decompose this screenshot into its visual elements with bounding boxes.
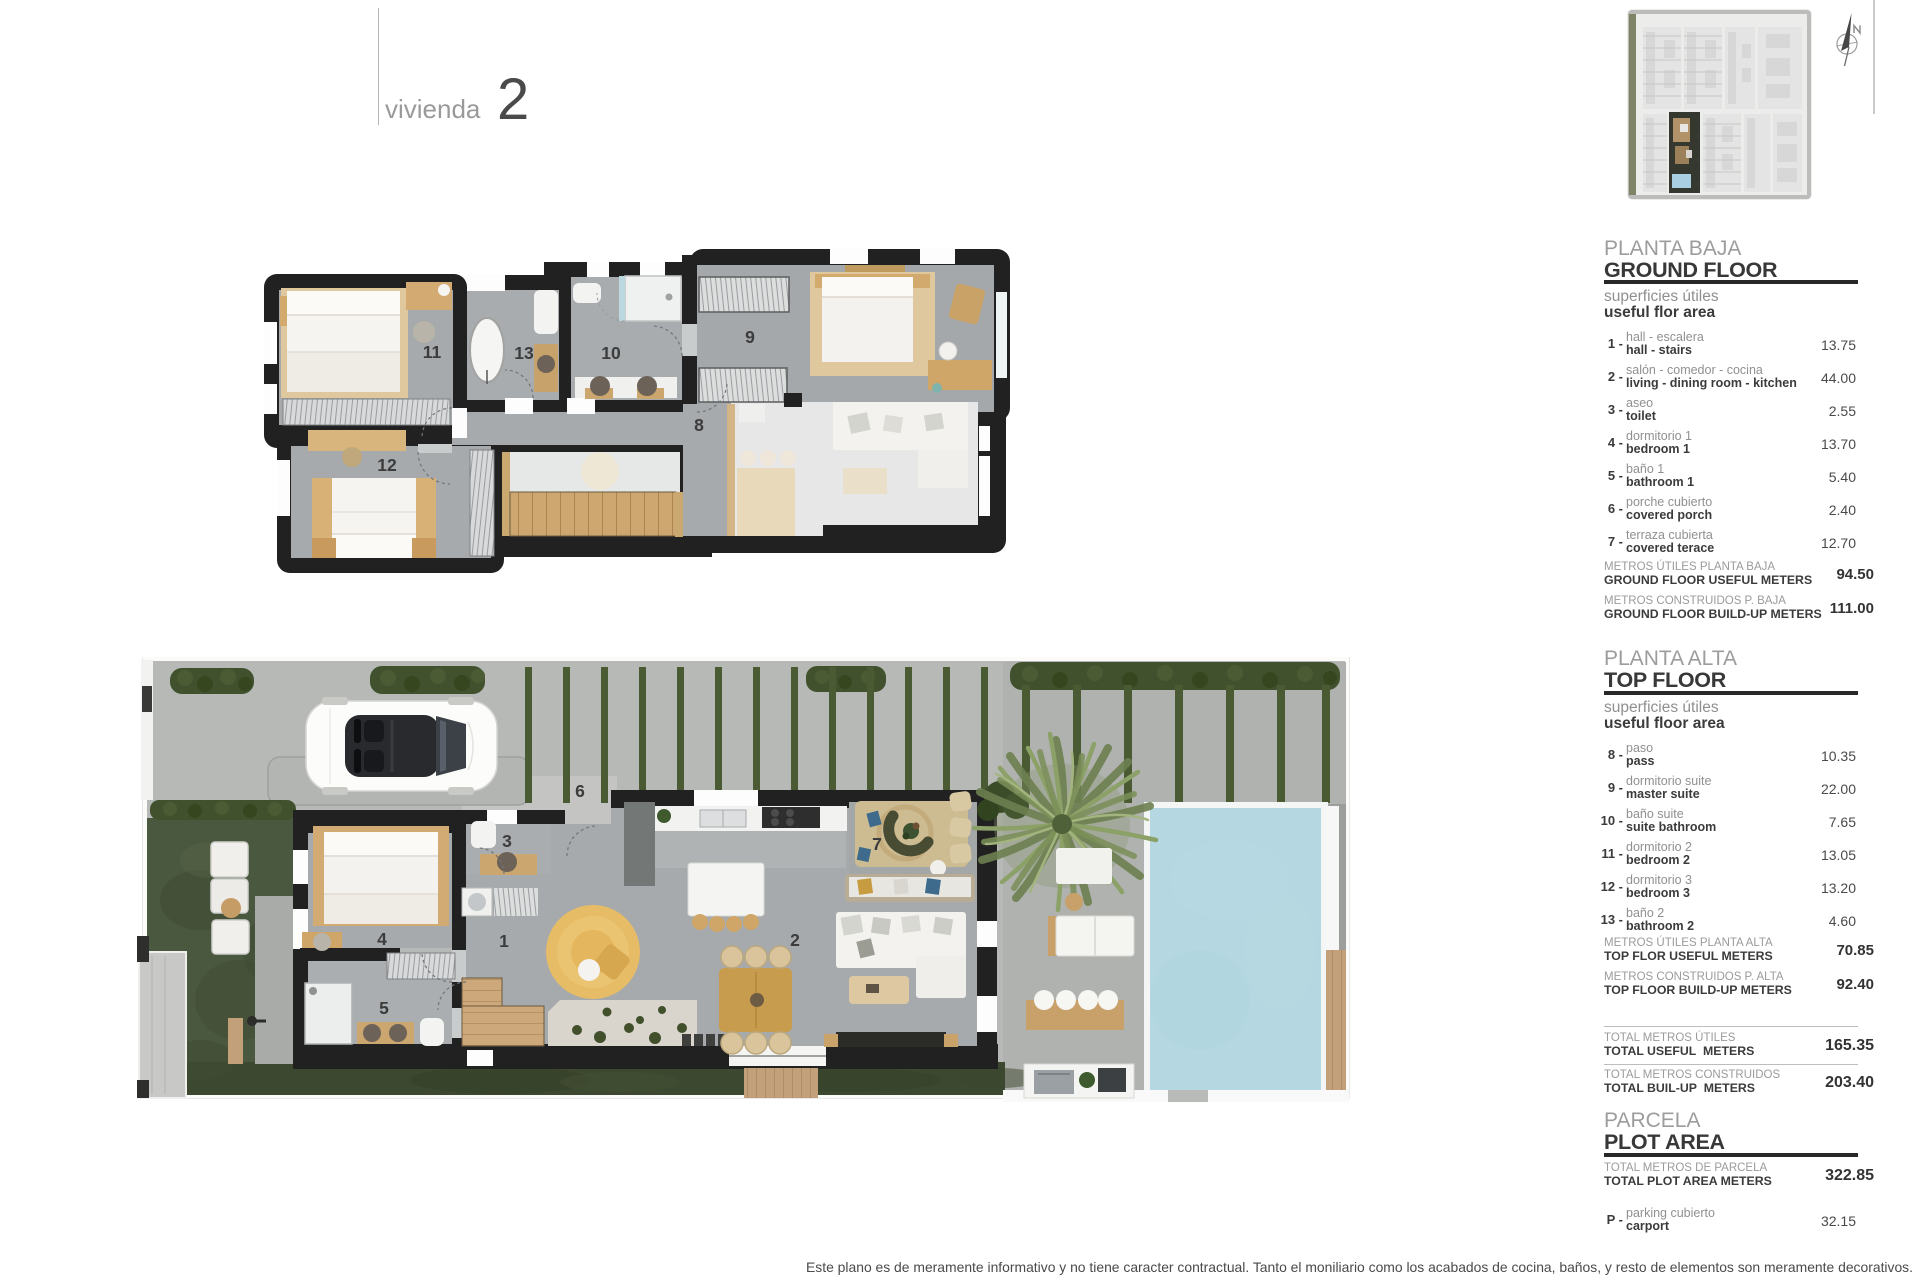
svg-text:1: 1 xyxy=(499,931,509,951)
svg-text:9: 9 xyxy=(745,327,755,347)
svg-text:12: 12 xyxy=(377,455,397,475)
svg-text:6: 6 xyxy=(575,781,585,801)
svg-text:8: 8 xyxy=(694,415,704,435)
svg-text:4: 4 xyxy=(377,929,387,949)
svg-text:7: 7 xyxy=(872,834,882,854)
svg-text:11: 11 xyxy=(423,342,442,362)
svg-text:3: 3 xyxy=(502,831,512,851)
svg-text:2: 2 xyxy=(790,930,800,950)
svg-text:10: 10 xyxy=(601,343,621,363)
svg-text:5: 5 xyxy=(379,998,389,1018)
svg-text:13: 13 xyxy=(514,343,534,363)
